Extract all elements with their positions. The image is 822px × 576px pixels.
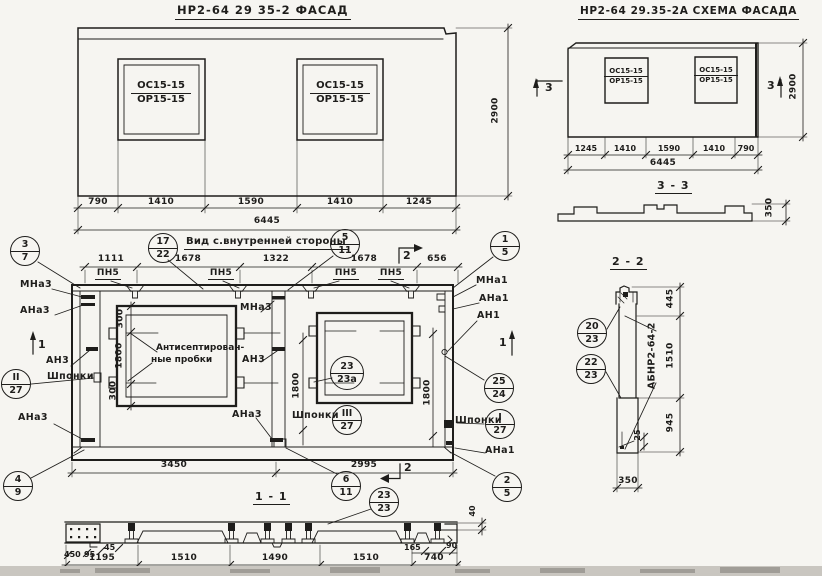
dim-label: 1510 (348, 554, 384, 563)
balloon-top: 2 (493, 475, 521, 488)
balloon-top: 23 (331, 361, 363, 374)
scan-smudge (95, 568, 150, 573)
dim-label: 300 (117, 306, 126, 332)
scan-smudge (230, 569, 270, 573)
dim-label: 945 (667, 410, 676, 436)
light-linework (72, 39, 756, 547)
balloon-top: 23 (370, 490, 398, 503)
dim-label: 40 (469, 501, 477, 521)
balloon-top: 4 (4, 474, 32, 487)
facade-title: НР2-64 29 35-2 ФАСАД (175, 5, 351, 20)
balloon-top: 6 (332, 474, 360, 487)
dimension-lines (62, 24, 803, 565)
anchor-label-an3: АН3 (46, 356, 69, 366)
dim-label: 1410 (143, 198, 179, 207)
dim-label: 1410 (610, 145, 640, 153)
window-type-bottom: ОР15-15 (694, 77, 738, 84)
dim-height: 350 (766, 194, 775, 222)
drawing-linework (0, 0, 822, 576)
balloon-top: 17 (149, 236, 177, 249)
pn5-label: ПН5 (208, 269, 234, 280)
dim-label: 165 (404, 544, 421, 552)
dim-label: 1510 (166, 554, 202, 563)
callout-balloon-III-27: III27 (332, 405, 362, 435)
balloon-bottom: 23 (577, 370, 605, 382)
sec11-title: 1 - 1 (253, 491, 290, 505)
anchor-label-ana3: АНа3 (20, 306, 50, 316)
balloon-bottom: 23а (331, 374, 363, 386)
schema-title: НР2-64 29.35-2А СХЕМА ФАСАДА (578, 6, 799, 20)
balloon-top: 20 (578, 321, 606, 334)
dim-label: 1245 (401, 198, 437, 207)
section-marker-2-top: 2 (403, 250, 411, 261)
callout-balloon-I-27: I27 (485, 409, 515, 439)
window-type-top: ОС15-15 (694, 67, 738, 76)
facade-outline (78, 28, 456, 196)
dim-label: 450 (64, 551, 81, 559)
section-marker-3-left: 3 (545, 82, 553, 93)
balloon-top: I (486, 412, 514, 425)
callout-balloon-II-27: II27 (1, 369, 31, 399)
pn5-label: ПН5 (95, 269, 121, 280)
scan-smudge (640, 569, 695, 573)
panel-stamp-label: АБНР2-64-2 (647, 314, 657, 398)
sec22-title: 2 - 2 (610, 256, 647, 270)
pn5-label: ПН5 (333, 269, 359, 280)
anchor-label-ana3: АНа3 (232, 410, 262, 420)
balloon-bottom: 27 (2, 385, 30, 397)
window-type-top: ОС15-15 (604, 68, 648, 77)
section-marker-1-left: 1 (38, 339, 46, 350)
inner-title: Вид с.внутренней стороны (184, 237, 348, 250)
plugs-note-line1: Антисептирован- (156, 344, 244, 353)
dim-label: 1800 (116, 340, 125, 372)
dim-label: 1590 (654, 145, 684, 153)
balloon-bottom: 11 (331, 245, 359, 257)
callout-balloon-6-11: 611 (331, 471, 361, 501)
dim-label: 1245 (571, 145, 601, 153)
balloon-bottom: 23 (578, 334, 606, 346)
dim-label: 25 (634, 425, 642, 445)
an1-target-mark (442, 349, 447, 354)
balloon-top: 25 (485, 376, 513, 389)
callout-balloon-3-7: 37 (10, 236, 40, 266)
dim-label: 790 (731, 145, 761, 153)
window-type-top: ОС15-15 (131, 81, 191, 94)
balloon-bottom: 5 (491, 247, 519, 259)
callout-balloon-1-5: 15 (490, 231, 520, 261)
balloon-top: 3 (11, 239, 39, 252)
scan-edge-artifact (0, 566, 822, 576)
balloon-top: 22 (577, 357, 605, 370)
scan-smudge (330, 567, 380, 573)
anchor-label-ana3: АНа3 (18, 413, 48, 423)
callout-balloon-2-5: 25 (492, 472, 522, 502)
scan-smudge (540, 568, 585, 573)
callout-balloon-22-23: 2223 (576, 354, 606, 384)
balloon-bottom: 24 (485, 389, 513, 401)
scan-smudge (455, 569, 490, 573)
schema-window-label-left: ОС15-15 ОР15-15 (604, 68, 648, 86)
anchor-label-mna3: МНа3 (240, 303, 272, 313)
plugs-note-line2: ные пробки (151, 356, 212, 365)
window-type-bottom: ОР15-15 (131, 95, 191, 106)
balloon-top: 5 (331, 232, 359, 245)
callout-balloon-4-9: 49 (3, 471, 33, 501)
window-type-top: ОС15-15 (310, 81, 370, 94)
scan-smudge (720, 567, 780, 573)
dim-label: 445 (667, 286, 676, 312)
section-marker-1-right: 1 (499, 337, 507, 348)
section-marker-2-bottom: 2 (404, 462, 412, 473)
pn5-label: ПН5 (378, 269, 404, 280)
dim-label: 350 (615, 477, 641, 486)
dim-label: 1322 (258, 255, 294, 264)
dim-label: 300 (110, 378, 119, 404)
balloon-bottom: 23 (370, 503, 398, 515)
balloon-bottom: 11 (332, 487, 360, 499)
anchor-label-mna1: МНа1 (476, 276, 508, 286)
dim-label: 656 (419, 255, 455, 264)
dim-label: 1410 (699, 145, 729, 153)
shponki-label-left: Шпонки (47, 372, 94, 382)
sec33-title: 3 - 3 (655, 180, 692, 194)
dim-label: 1590 (233, 198, 269, 207)
facade-window-label-left: ОС15-15 ОР15-15 (131, 81, 191, 105)
dim-label: 1490 (257, 554, 293, 563)
anchor-label-mna3: МНа3 (20, 280, 52, 290)
schema-outline (568, 43, 758, 137)
section-marker-3-right: 3 (767, 80, 775, 91)
dim-label: 740 (418, 554, 450, 563)
facade-window-label-right: ОС15-15 ОР15-15 (310, 81, 370, 105)
dim-label: 1410 (322, 198, 358, 207)
balloon-top: II (2, 372, 30, 385)
extension-lines (66, 28, 807, 567)
dim-label: 3450 (154, 461, 194, 470)
sec33-profile (558, 205, 752, 221)
scan-smudge (60, 569, 80, 573)
callout-balloon-23-23a: 2323а (330, 356, 364, 390)
schema-window-label-right: ОС15-15 ОР15-15 (694, 67, 738, 85)
window-type-bottom: ОР15-15 (604, 78, 648, 85)
dim-label: 1510 (667, 341, 676, 371)
dim-total: 6445 (249, 217, 285, 226)
anchor-label-an3: АН3 (242, 355, 265, 365)
balloon-bottom: 7 (11, 252, 39, 264)
dim-label: 45 (104, 544, 115, 552)
dim-label: 2995 (344, 461, 384, 470)
balloon-top: 1 (491, 234, 519, 247)
balloon-bottom: 9 (4, 487, 32, 499)
dim-label: 1111 (93, 255, 129, 264)
dim-total: 6445 (645, 159, 681, 168)
balloon-bottom: 5 (493, 488, 521, 500)
balloon-bottom: 27 (333, 421, 361, 433)
dimension-ticks (63, 25, 807, 569)
dim-label: 1800 (424, 377, 433, 409)
dim-height: 2900 (790, 69, 799, 105)
drawing-sheet: { "facade": { "title": "НР2-64 29 35-2 Ф… (0, 0, 822, 576)
balloon-bottom: 27 (486, 425, 514, 437)
callout-balloon-5-11: 511 (330, 229, 360, 259)
anchor-label-ana1: АНа1 (479, 294, 509, 304)
balloon-top: III (333, 408, 361, 421)
anchor-label-an1: АН1 (477, 311, 500, 321)
dim-height: 2900 (492, 93, 501, 129)
callout-balloon-17-22: 1722 (148, 233, 178, 263)
callout-balloon-20-23: 2023 (577, 318, 607, 348)
callout-balloon-23-23: 2323 (369, 487, 399, 517)
balloon-bottom: 22 (149, 249, 177, 261)
anchor-label-ana1: АНа1 (485, 446, 515, 456)
dim-label: 1800 (293, 370, 302, 402)
dim-label: 790 (80, 198, 116, 207)
callout-balloon-25-24: 2524 (484, 373, 514, 403)
dim-label: 90 (446, 542, 457, 550)
dim-label: 95 (84, 551, 95, 559)
window-type-bottom: ОР15-15 (310, 95, 370, 106)
